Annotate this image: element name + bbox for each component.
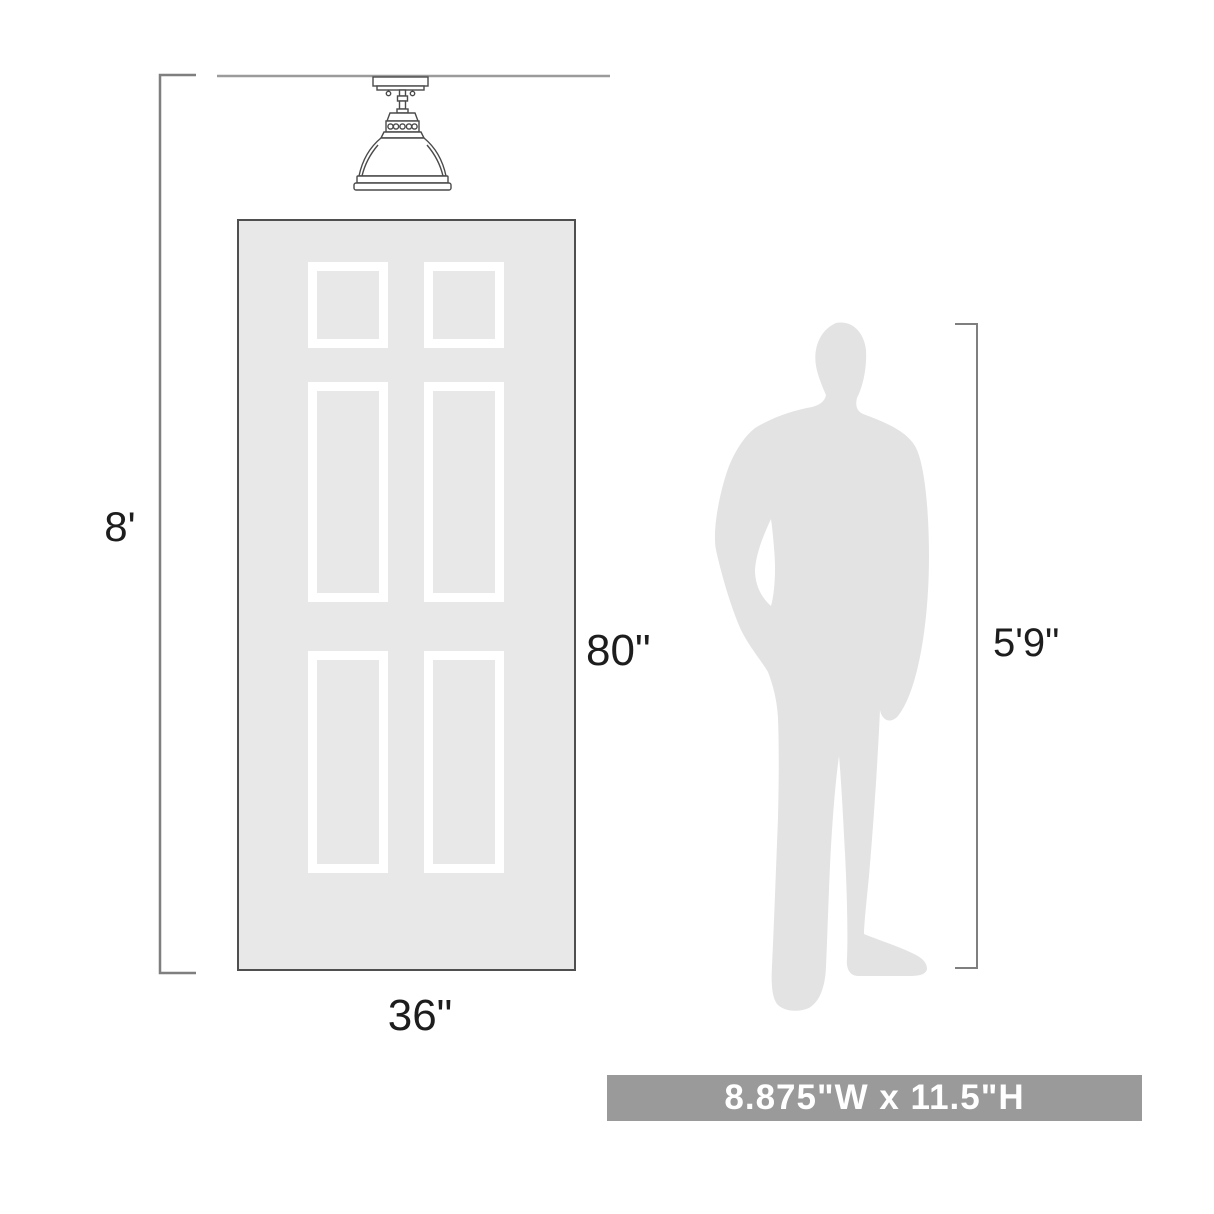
person-height-bracket bbox=[955, 324, 977, 968]
door-panel-inset bbox=[317, 271, 379, 339]
fixture-bead bbox=[406, 124, 411, 129]
ceiling-light-icon bbox=[354, 77, 451, 190]
fixture-bead bbox=[400, 124, 405, 129]
fixture-shade bbox=[359, 138, 446, 176]
person-height-label: 5'9" bbox=[993, 623, 1059, 663]
door-panel-inset bbox=[433, 660, 495, 864]
fixture-rim-lower bbox=[354, 183, 451, 190]
fixture-stem-flange bbox=[398, 96, 408, 101]
person-silhouette bbox=[715, 323, 929, 1011]
fixture-stem-lower bbox=[400, 101, 406, 109]
door-panel-inset bbox=[317, 391, 379, 593]
fixture-canopy bbox=[373, 77, 428, 86]
door-panel-inset bbox=[317, 660, 379, 864]
scale-diagram: 8' 80" 36" 5'9" 8.875"W x 11.5"H bbox=[0, 0, 1214, 1214]
fixture-rim-upper bbox=[357, 176, 448, 183]
fixture-bead bbox=[393, 124, 398, 129]
fixture-stem bbox=[400, 90, 406, 96]
fixture-fitter bbox=[387, 113, 418, 121]
product-size-banner: 8.875"W x 11.5"H bbox=[607, 1075, 1142, 1121]
fixture-screw-right bbox=[410, 91, 414, 95]
product-size-text: 8.875"W x 11.5"H bbox=[724, 1078, 1024, 1118]
diagram-artwork bbox=[0, 0, 1214, 1214]
fixture-bead bbox=[412, 124, 417, 129]
door-panel-inset bbox=[433, 391, 495, 593]
door-panel-inset bbox=[433, 271, 495, 339]
person-silhouette-icon bbox=[715, 323, 929, 1011]
door-slab bbox=[238, 220, 575, 970]
ceiling-height-bracket bbox=[160, 75, 196, 973]
fixture-bead bbox=[388, 124, 393, 129]
door-height-label: 80" bbox=[586, 629, 651, 673]
six-panel-door-icon bbox=[238, 220, 575, 970]
ceiling-height-label: 8' bbox=[88, 506, 152, 548]
fixture-screw-left bbox=[386, 91, 390, 95]
door-width-label: 36" bbox=[370, 994, 470, 1038]
fixture-flare bbox=[381, 132, 424, 138]
